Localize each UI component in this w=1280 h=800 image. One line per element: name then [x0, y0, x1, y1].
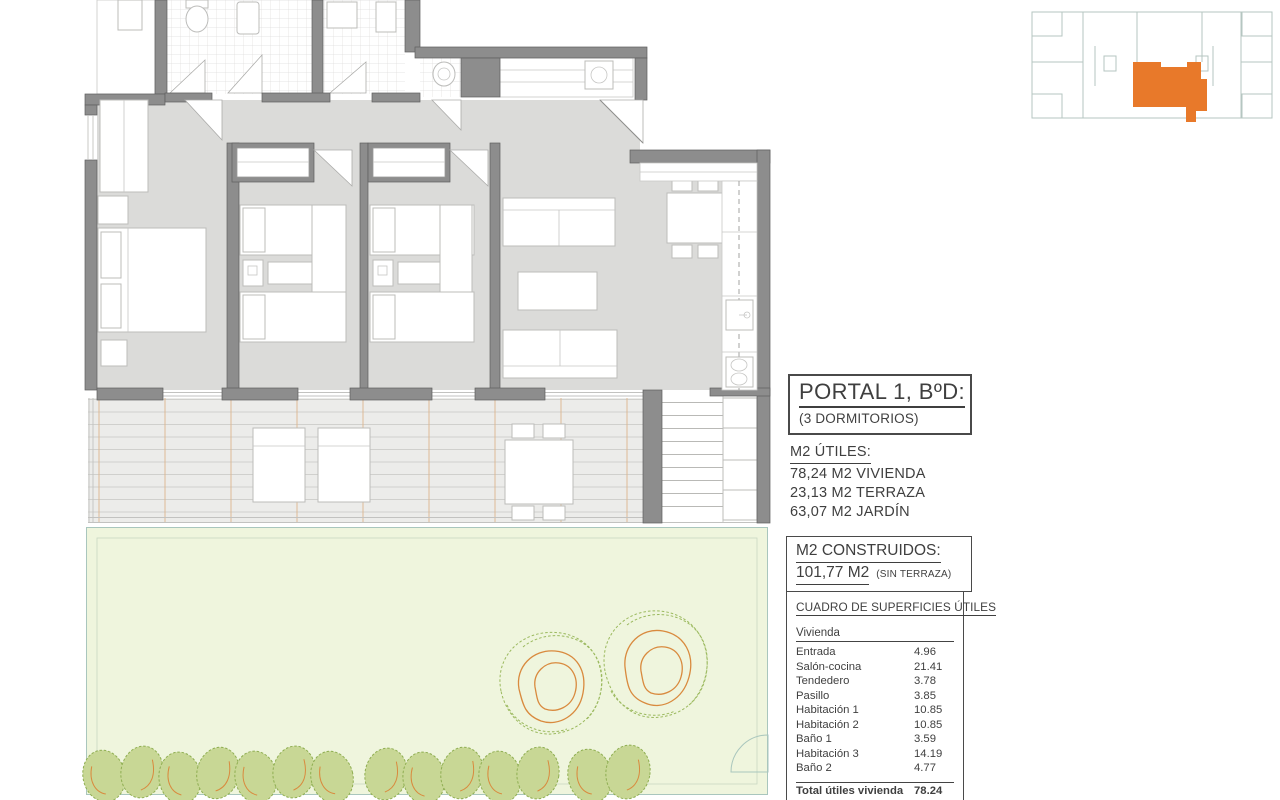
terrace-lounger: [318, 428, 370, 502]
surface-table-title: CUADRO DE SUPERFICIES ÚTILES: [796, 600, 954, 616]
m2-construidos-value-line: 101,77 M2(SIN TERRAZA): [796, 563, 962, 585]
m2-construidos-heading: M2 CONSTRUIDOS:: [796, 541, 962, 563]
wardrobe-icon: [237, 148, 309, 177]
sink-icon: [237, 2, 259, 34]
nightstand-icon: [373, 260, 393, 286]
floorplan-drawing: [0, 0, 780, 800]
sink-icon: [726, 300, 753, 330]
window-left: [88, 115, 93, 160]
table-row: Habitación 110.85: [796, 703, 954, 718]
table-row: Baño 13.59: [796, 732, 954, 747]
m2-construidos-value: 101,77 M2: [796, 563, 869, 585]
toilet-icon: [186, 0, 208, 32]
exterior-stairs: [662, 396, 757, 523]
m2-construidos-note: (SIN TERRAZA): [876, 569, 951, 580]
sofa-icon: [503, 198, 615, 246]
tendedero-counter: [500, 58, 633, 97]
sofa-icon: [503, 330, 617, 378]
table-row: Salón-cocina21.41: [796, 660, 954, 675]
portal-title-box: PORTAL 1, BºD: (3 DORMITORIOS): [788, 374, 972, 435]
portal-title: PORTAL 1, BºD:: [799, 379, 961, 408]
nightstand-icon: [243, 260, 263, 286]
coffee-table-icon: [518, 272, 597, 310]
table-row: Entrada4.96: [796, 645, 954, 660]
table-total-row: Total útiles vivienda78.24: [796, 782, 954, 800]
unit-locator-minimap: [1028, 6, 1276, 124]
washing-machine-icon: [585, 61, 613, 89]
ottoman-icon: [101, 340, 127, 366]
m2-utiles-line: 63,07 M2 JARDÍN: [790, 503, 926, 522]
table-row: Habitación 210.85: [796, 718, 954, 733]
m2-utiles-line: 23,13 M2 TERRAZA: [790, 484, 926, 503]
table-row: Habitación 314.19: [796, 747, 954, 762]
table-row: Pasillo3.85: [796, 689, 954, 704]
wardrobe-icon: [373, 148, 445, 177]
bed-icon: [240, 292, 346, 342]
terrace: [88, 393, 643, 524]
shower-icon: [327, 2, 357, 28]
m2-utiles-block: M2 ÚTILES: 78,24 M2 VIVIENDA 23,13 M2 TE…: [790, 443, 926, 522]
double-bed-icon: [98, 228, 206, 332]
terrace-lounger: [253, 428, 305, 502]
bed-icon: [370, 292, 474, 342]
floorplan-sheet: PORTAL 1, BºD: (3 DORMITORIOS) M2 ÚTILES…: [0, 0, 1280, 800]
surface-table-group-header: Vivienda: [796, 627, 954, 642]
highlighted-unit: [1133, 62, 1207, 122]
table-row: Baño 24.77: [796, 761, 954, 776]
m2-utiles-line: 78,24 M2 VIVIENDA: [790, 465, 926, 484]
m2-utiles-heading: M2 ÚTILES:: [790, 443, 926, 464]
stove-icon: [726, 357, 753, 387]
table-row: Tendedero3.78: [796, 674, 954, 689]
surface-table-box: CUADRO DE SUPERFICIES ÚTILES Vivienda En…: [786, 591, 964, 800]
m2-construidos-box: M2 CONSTRUIDOS: 101,77 M2(SIN TERRAZA): [786, 536, 972, 592]
toilet-icon: [433, 62, 455, 86]
portal-subtitle: (3 DORMITORIOS): [799, 411, 961, 426]
